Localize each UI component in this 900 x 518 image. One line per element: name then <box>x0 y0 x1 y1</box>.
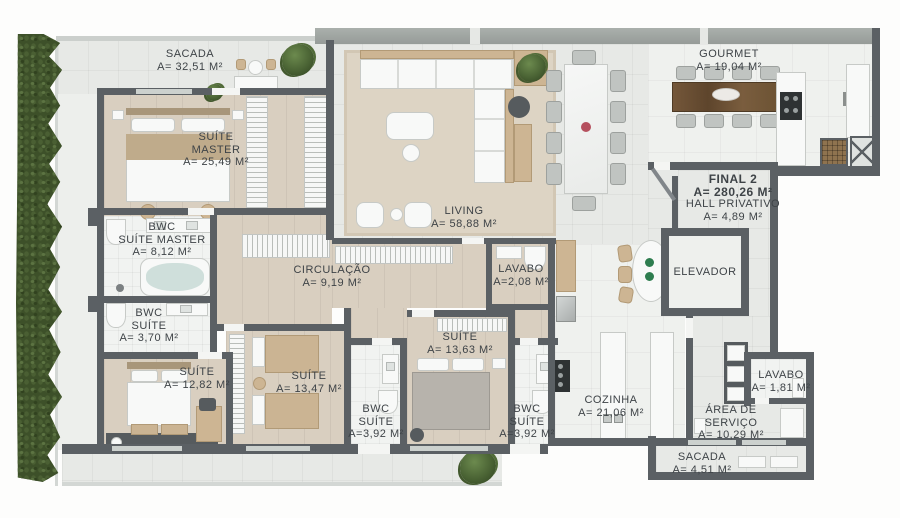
hall-area: A= 4,89 M² <box>686 211 780 224</box>
duct-shaft <box>850 136 874 168</box>
dining-chair <box>572 50 596 65</box>
room-area: A=2,08 M² <box>493 276 549 289</box>
wall-pillar <box>88 296 97 312</box>
nook-chair <box>617 244 633 263</box>
room-name: LAVABO <box>751 369 810 382</box>
pillow <box>181 118 225 132</box>
bed-duvet <box>412 372 490 430</box>
sofa-chaise <box>474 89 505 183</box>
master-closet <box>304 96 328 208</box>
stool <box>410 428 424 442</box>
washer <box>727 345 745 361</box>
burner <box>784 96 789 101</box>
door-threshold <box>198 352 222 359</box>
desk <box>196 406 222 442</box>
planter <box>770 456 798 468</box>
vestibule-left-floor <box>351 308 407 338</box>
room-area: A=3,92 M² <box>499 428 555 441</box>
window <box>136 89 192 94</box>
nightstand <box>112 110 124 120</box>
unit-number: FINAL 2 <box>686 173 780 186</box>
room-area: A= 25,49 M² <box>183 156 249 169</box>
balcony-railing <box>56 36 334 41</box>
desk-chair <box>199 398 216 411</box>
dining-chair <box>610 101 626 123</box>
nightstand <box>492 358 506 369</box>
kitchen-island <box>600 332 626 442</box>
armchair <box>404 202 432 228</box>
sink-basin <box>180 305 192 313</box>
foot-pillow <box>131 424 158 435</box>
room-area: A= 19,04 M² <box>696 61 762 74</box>
terrace-railing <box>62 482 502 486</box>
foot-pillow <box>161 424 188 435</box>
label-living: LIVING A= 58,88 M² <box>431 205 497 230</box>
burner <box>558 382 563 387</box>
sink-basin <box>386 362 395 371</box>
decor-mirror <box>556 296 576 322</box>
label-gourmet: GOURMET A= 19,04 M² <box>696 48 762 73</box>
planter <box>738 456 766 468</box>
dining-chair <box>610 163 626 185</box>
pillow <box>252 395 265 425</box>
wall <box>486 240 492 310</box>
unit-total-area: A= 280,26 M² <box>686 186 780 199</box>
label-sacada-bottom: SACADA A= 4,51 M² <box>672 451 731 476</box>
bbq-grill <box>820 138 848 166</box>
door-threshold <box>212 88 240 95</box>
room-area: A= 1,81 M² <box>751 382 810 395</box>
window <box>112 446 182 451</box>
wall <box>672 176 678 230</box>
dining-chair <box>546 132 562 154</box>
ottoman <box>402 144 420 162</box>
refrigerator <box>846 64 870 138</box>
dining-chair <box>546 101 562 123</box>
bistro-table <box>248 60 263 75</box>
window <box>246 446 310 451</box>
pillow <box>417 358 449 371</box>
wall <box>97 296 217 303</box>
dining-chair <box>610 70 626 92</box>
side-table-small <box>390 208 403 221</box>
label-bwc-right: BWC SUÍTE A=3,92 M² <box>499 403 555 441</box>
wall <box>744 352 806 359</box>
room-name: SUÍTE <box>276 370 342 383</box>
label-bwc-suite-370: BWC SUÍTE A= 3,70 M² <box>119 307 178 345</box>
gourmet-chair <box>704 114 724 128</box>
top-concrete-slab <box>315 28 880 44</box>
stool <box>253 377 266 390</box>
room-name: BWC <box>118 221 205 234</box>
hall-closet <box>242 234 330 258</box>
gourmet-chair <box>676 66 696 80</box>
dining-chair <box>546 70 562 92</box>
room-name: CIRCULAÇÃO <box>293 264 370 277</box>
label-suite-1282: SUÍTE A= 12,82 M² <box>164 366 230 391</box>
room-area: A= 4,51 M² <box>672 464 731 477</box>
room-name: SUÍTE <box>499 416 555 429</box>
burner <box>558 373 563 378</box>
label-unit-info: FINAL 2 A= 280,26 M² HALL PRIVATIVO A= 4… <box>686 173 780 223</box>
plate <box>645 272 654 281</box>
dryer <box>727 366 745 382</box>
wall <box>486 304 554 310</box>
sink <box>496 246 522 259</box>
room-area: A= 32,51 M² <box>157 61 223 74</box>
sofa <box>360 59 514 89</box>
window <box>410 446 488 451</box>
burner <box>793 96 798 101</box>
bottom-terrace <box>62 450 502 483</box>
room-name: SACADA <box>672 451 731 464</box>
serving-platter <box>712 88 740 101</box>
door-threshold <box>188 208 214 215</box>
room-name: BWC <box>119 307 178 320</box>
room-name: GOURMET <box>696 48 762 61</box>
label-suite-1363: SUÍTE A= 13,63 M² <box>427 331 493 356</box>
door-threshold <box>520 338 538 345</box>
tall-cabinet <box>556 240 576 292</box>
door-threshold <box>686 318 693 338</box>
pillow <box>252 337 265 367</box>
fridge-handle <box>843 92 846 106</box>
burner <box>784 108 789 113</box>
floor-plan: SACADA A= 32,51 M² SUÍTE MASTER A= 25,49… <box>0 0 900 518</box>
room-name: SUÍTE <box>164 366 230 379</box>
room-name: SUÍTE MASTER <box>118 234 205 247</box>
hall-closet <box>335 246 453 264</box>
console-table <box>514 124 532 182</box>
room-name: LAVABO <box>493 263 549 276</box>
room-name: SUÍTE <box>119 320 178 333</box>
label-lavabo-social: LAVABO A=2,08 M² <box>493 263 549 288</box>
room-name: SUÍTE <box>427 331 493 344</box>
label-sacada-top: SACADA A= 32,51 M² <box>157 48 223 73</box>
pillow <box>131 118 175 132</box>
armchair <box>356 202 384 228</box>
room-name: SUÍTE <box>348 416 404 429</box>
twin-bed <box>265 335 319 373</box>
room-area: A= 21,06 M² <box>578 407 644 420</box>
room-area: A=3,92 M² <box>348 428 404 441</box>
cooktop <box>780 92 802 120</box>
burner <box>558 364 563 369</box>
door-threshold <box>412 310 434 317</box>
room-name: LIVING <box>431 205 497 218</box>
wall <box>97 90 104 450</box>
bed-headboard <box>126 108 230 115</box>
nook-chair <box>618 266 632 283</box>
room-name: BWC <box>499 403 555 416</box>
room-area: A= 9,19 M² <box>293 277 370 290</box>
side-table-round <box>508 96 530 118</box>
burner <box>793 108 798 113</box>
room-name: MASTER <box>183 144 249 157</box>
toilet <box>780 408 804 438</box>
slab-joint <box>700 28 708 44</box>
label-suite-1347: SUÍTE A= 13,47 M² <box>276 370 342 395</box>
door-threshold <box>462 238 484 244</box>
label-suite-master: SUÍTE MASTER A= 25,49 M² <box>183 131 249 169</box>
room-area: A= 10,29 M² <box>698 429 764 442</box>
pillow <box>131 370 158 382</box>
label-lavabo-servico: LAVABO A= 1,81 M² <box>751 369 810 394</box>
coffee-table <box>386 112 434 140</box>
door-threshold <box>372 338 392 345</box>
bistro-chair <box>236 59 246 70</box>
hall-name: HALL PRIVATIVO <box>686 198 780 211</box>
label-bwc-left: BWC SUÍTE A=3,92 M² <box>348 403 404 441</box>
wall <box>210 210 217 357</box>
room-name: SACADA <box>157 48 223 61</box>
dining-chair <box>546 163 562 185</box>
shelf <box>727 387 745 401</box>
door-threshold <box>510 444 540 454</box>
slab-joint <box>470 28 480 44</box>
twin-bed <box>265 393 319 429</box>
room-area: A= 12,82 M² <box>164 379 230 392</box>
nightstand <box>232 110 244 120</box>
wall <box>776 166 880 176</box>
door-threshold <box>358 444 390 454</box>
room-area: A= 13,47 M² <box>276 383 342 396</box>
label-area-servico: ÁREA DE SERVIÇO A= 10,29 M² <box>698 404 764 442</box>
room-name: SERVIÇO <box>698 417 764 430</box>
shower-head <box>116 284 124 292</box>
room-name: ELEVADOR <box>673 266 736 279</box>
nook-chair <box>618 286 635 304</box>
label-circulacao: CIRCULAÇÃO A= 9,19 M² <box>293 264 370 289</box>
room-name: SUÍTE <box>183 131 249 144</box>
gourmet-chair <box>732 114 752 128</box>
room-name: COZINHA <box>578 394 644 407</box>
wall <box>484 238 556 244</box>
door-threshold <box>224 324 244 331</box>
room-area: A= 3,70 M² <box>119 332 178 345</box>
room-area: A= 13,63 M² <box>427 344 493 357</box>
wall <box>332 238 462 244</box>
wall <box>872 28 880 174</box>
label-cozinha: COZINHA A= 21,06 M² <box>578 394 644 419</box>
wall <box>744 352 751 406</box>
master-closet <box>246 96 268 208</box>
bathtub-water <box>146 263 204 291</box>
kitchen-counter <box>650 332 674 442</box>
flower-centerpiece <box>581 122 591 132</box>
room-area: A= 8,12 M² <box>118 246 205 259</box>
plate <box>645 258 654 267</box>
wall-pillar <box>88 208 97 226</box>
entry-threshold <box>654 162 670 170</box>
gourmet-chair <box>676 114 696 128</box>
bistro-chair <box>266 59 276 70</box>
label-elevador: ELEVADOR <box>673 266 736 279</box>
room-name: BWC <box>348 403 404 416</box>
closet <box>437 318 507 332</box>
label-bwc-suite-master: BWC SUÍTE MASTER A= 8,12 M² <box>118 221 205 259</box>
dining-chair <box>572 196 596 211</box>
pillow <box>452 358 484 371</box>
room-name: ÁREA DE <box>698 404 764 417</box>
dining-chair <box>610 132 626 154</box>
room-area: A= 58,88 M² <box>431 218 497 231</box>
sofa-back <box>360 50 514 59</box>
